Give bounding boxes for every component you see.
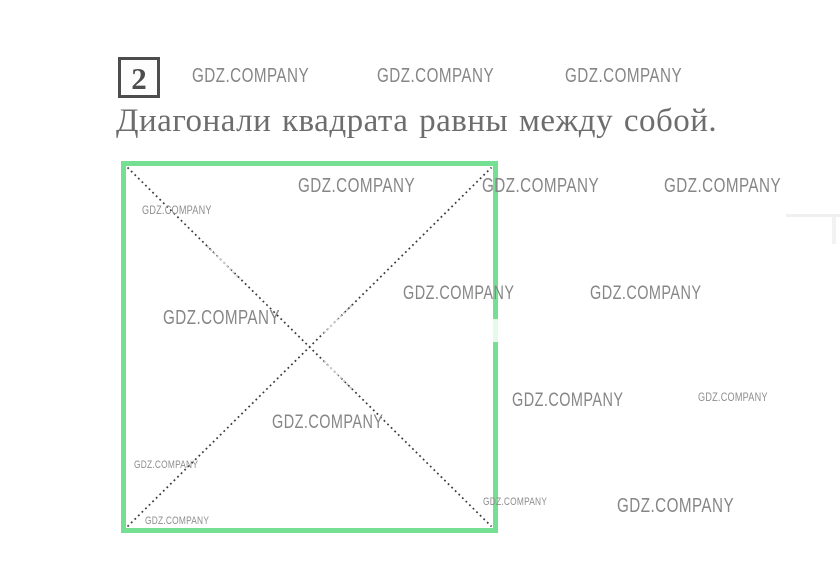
watermark: GDZ.COMPANY: [664, 176, 781, 196]
watermark: GDZ.COMPANY: [134, 460, 198, 471]
watermark: GDZ.COMPANY: [377, 66, 494, 86]
watermark: GDZ.COMPANY: [482, 176, 599, 196]
watermark: GDZ.COMPANY: [590, 284, 701, 303]
watermark: GDZ.COMPANY: [403, 284, 514, 303]
watermark: GDZ.COMPANY: [617, 496, 734, 516]
exercise-number: 2: [131, 63, 147, 94]
watermark: GDZ.COMPANY: [565, 66, 682, 86]
watermark: GDZ.COMPANY: [192, 66, 309, 86]
right-border-gap: [489, 319, 499, 342]
exercise-number-box: 2: [118, 57, 160, 98]
problem-statement: Диагонали квадрата равны между собой.: [116, 103, 826, 139]
faint-box-edge-vertical: [832, 216, 836, 244]
watermark: GDZ.COMPANY: [298, 176, 415, 196]
watermark: GDZ.COMPANY: [698, 391, 768, 403]
watermark: GDZ.COMPANY: [483, 497, 547, 508]
diagonals-svg: [126, 166, 493, 528]
watermark: GDZ.COMPANY: [145, 516, 209, 527]
watermark: GDZ.COMPANY: [163, 308, 280, 328]
page-root: 2 Диагонали квадрата равны между собой. …: [0, 0, 840, 563]
watermark: GDZ.COMPANY: [272, 413, 383, 432]
watermark: GDZ.COMPANY: [512, 391, 623, 410]
watermark: GDZ.COMPANY: [142, 204, 212, 216]
